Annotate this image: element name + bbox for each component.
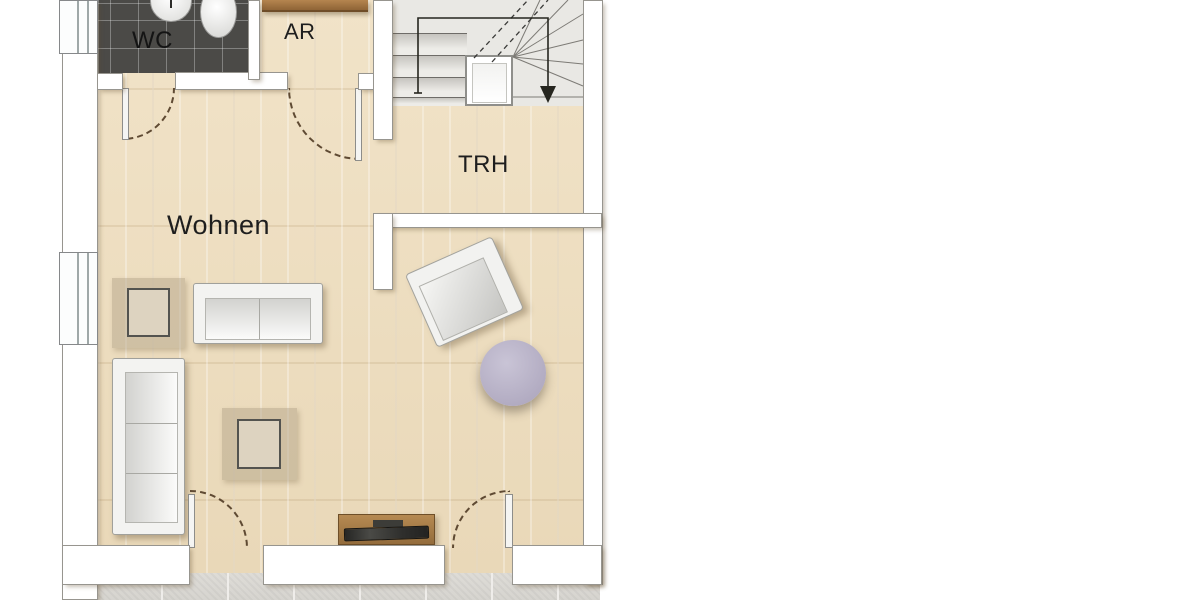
bottom-wall-left bbox=[62, 545, 190, 585]
sink-tap-icon bbox=[170, 0, 172, 8]
round-side-table bbox=[480, 340, 546, 406]
stair-symbols bbox=[385, 0, 600, 112]
two-seat-sofa bbox=[193, 283, 323, 344]
sofa-seat bbox=[125, 372, 178, 523]
cushion-divider bbox=[126, 473, 177, 474]
window-pane-line bbox=[87, 253, 89, 344]
ar-stair-wall bbox=[373, 0, 393, 140]
window-pane-line bbox=[77, 1, 79, 53]
coffee-table-rug bbox=[112, 278, 185, 348]
tv-screen bbox=[344, 526, 429, 542]
coffee-table-1 bbox=[127, 288, 170, 337]
window-pane-line bbox=[87, 1, 89, 53]
stair-walking-line bbox=[418, 18, 548, 93]
left-window-middle bbox=[59, 252, 98, 345]
wc-ar-south-wall-a bbox=[97, 73, 123, 90]
trh-south-wall-return bbox=[373, 213, 393, 290]
ar-shelf bbox=[262, 0, 368, 12]
bottom-wall-right bbox=[512, 545, 602, 585]
sofa-seat bbox=[205, 298, 311, 340]
room-label-ar: AR bbox=[284, 19, 316, 45]
wc-ar-divider-wall bbox=[248, 0, 260, 80]
wc-ar-south-wall-stub bbox=[358, 73, 374, 90]
cushion-divider bbox=[126, 423, 177, 424]
toilet bbox=[200, 0, 237, 38]
left-window-top bbox=[59, 0, 98, 54]
stair-cut-lines bbox=[474, 0, 548, 62]
coffee-table-2 bbox=[237, 419, 281, 469]
cushion-divider bbox=[259, 299, 260, 339]
wc-door-leaf bbox=[122, 88, 129, 140]
floor-plan-canvas: WC AR TRH Wohnen bbox=[0, 0, 1200, 600]
wc-floor bbox=[98, 0, 250, 73]
room-label-trh: TRH bbox=[458, 151, 509, 179]
terrace-door-right-leaf bbox=[505, 494, 513, 548]
right-exterior-wall bbox=[583, 0, 603, 585]
terrace-door-left-leaf bbox=[188, 494, 195, 548]
room-label-wohnen: Wohnen bbox=[167, 210, 270, 241]
coffee-table-rug bbox=[222, 408, 297, 480]
bottom-wall-middle bbox=[263, 545, 445, 585]
stair-down-arrow-icon bbox=[540, 86, 556, 103]
trh-south-wall bbox=[373, 213, 602, 228]
tv-sideboard bbox=[338, 514, 435, 545]
window-pane-line bbox=[77, 253, 79, 344]
ar-door-leaf bbox=[355, 88, 362, 161]
wc-ar-south-wall-b bbox=[175, 72, 288, 90]
three-seat-sofa bbox=[112, 358, 185, 535]
room-label-wc: WC bbox=[132, 27, 173, 55]
